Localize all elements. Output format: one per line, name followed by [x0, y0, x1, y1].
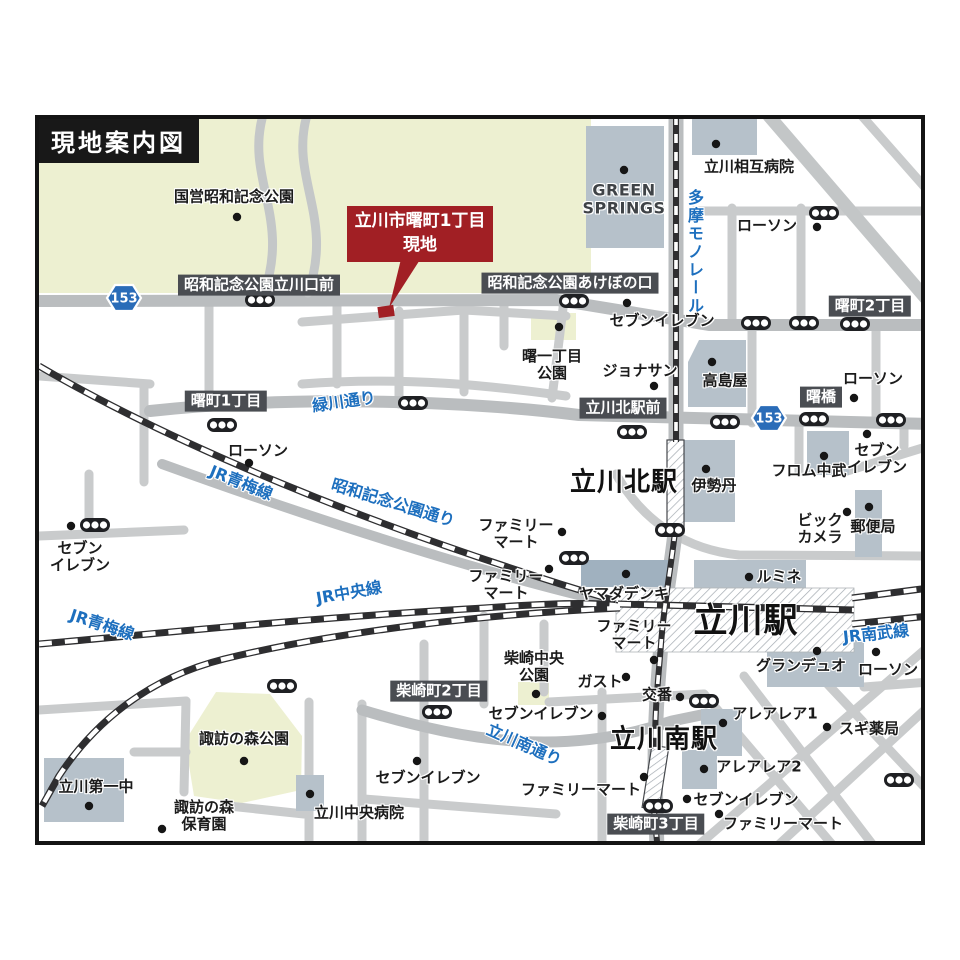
traffic-signal-icon — [876, 413, 906, 427]
traffic-signal-icon — [655, 523, 685, 537]
poi-dot — [233, 213, 241, 221]
traffic-signal-icon — [884, 773, 914, 787]
traffic-signal-icon — [789, 316, 819, 330]
poi-dot — [708, 358, 716, 366]
traffic-signal-icon — [559, 551, 589, 565]
poi-dot — [622, 673, 630, 681]
poi-dot — [622, 570, 630, 578]
traffic-signal-icon — [617, 425, 647, 439]
traffic-signal-icon — [809, 206, 839, 220]
poi-dot — [712, 140, 720, 148]
poi-dot — [413, 757, 421, 765]
poi-dot — [676, 693, 684, 701]
site-callout-line2: 現地 — [347, 234, 493, 258]
poi-dot — [598, 712, 606, 720]
poi-dot — [813, 223, 821, 231]
traffic-signal-icon — [643, 799, 673, 813]
poi-dot — [865, 503, 873, 511]
poi-dot — [850, 394, 858, 402]
traffic-signal-icon — [207, 418, 237, 432]
poi-dot — [640, 773, 648, 781]
traffic-signal-icon — [267, 679, 297, 693]
poi-dot — [623, 299, 631, 307]
poi-dot — [245, 459, 253, 467]
traffic-signal-icon — [398, 396, 428, 410]
traffic-signal-icon — [80, 518, 110, 532]
map-title: 現地案内図 — [38, 118, 199, 163]
poi-dot — [820, 452, 828, 460]
traffic-signal-icon — [710, 415, 740, 429]
traffic-signal-icon — [840, 317, 870, 331]
poi-dot — [650, 656, 658, 664]
poi-dot — [700, 765, 708, 773]
poi-dot — [823, 723, 831, 731]
route-153-shield: 153 — [752, 405, 786, 431]
svg-text:153: 153 — [755, 412, 782, 427]
site-guide-map-page: 153153 国営昭和記念公園GREENSPRINGS立川相互病院ローソンセブン… — [0, 0, 960, 960]
tachikawa-kita-platform — [667, 440, 684, 533]
traffic-signal-icon — [422, 705, 452, 719]
poi-dot — [67, 522, 75, 530]
tachikawa-station-area — [616, 588, 854, 652]
site-callout-line1: 立川市曙町1丁目 — [347, 210, 493, 234]
poi-dot — [555, 323, 563, 331]
poi-dot — [532, 690, 540, 698]
poi-dot — [558, 528, 566, 536]
poi-dot — [745, 573, 753, 581]
route-153-shield: 153 — [107, 285, 141, 311]
svg-text:153: 153 — [110, 292, 137, 307]
poi-dot — [872, 648, 880, 656]
traffic-signal-icon — [245, 293, 275, 307]
traffic-signal-icon — [559, 294, 589, 308]
poi-dot — [683, 795, 691, 803]
poi-dot — [702, 465, 710, 473]
poi-dot — [545, 565, 553, 573]
map-frame: 153153 国営昭和記念公園GREENSPRINGS立川相互病院ローソンセブン… — [35, 115, 925, 845]
site-callout: 立川市曙町1丁目 現地 — [347, 206, 493, 262]
poi-dot — [158, 825, 166, 833]
poi-dot — [715, 810, 723, 818]
poi-dot — [306, 790, 314, 798]
traffic-signal-icon — [741, 316, 771, 330]
poi-dot — [650, 382, 658, 390]
site-marker-square — [377, 305, 394, 318]
poi-dot — [85, 802, 93, 810]
poi-dot — [813, 647, 821, 655]
poi-dot — [863, 430, 871, 438]
poi-dot — [620, 166, 628, 174]
poi-dot — [843, 508, 851, 516]
poi-dot — [240, 757, 248, 765]
poi-dot — [719, 719, 727, 727]
traffic-signal-icon — [689, 694, 719, 708]
traffic-signal-icon — [799, 412, 829, 426]
